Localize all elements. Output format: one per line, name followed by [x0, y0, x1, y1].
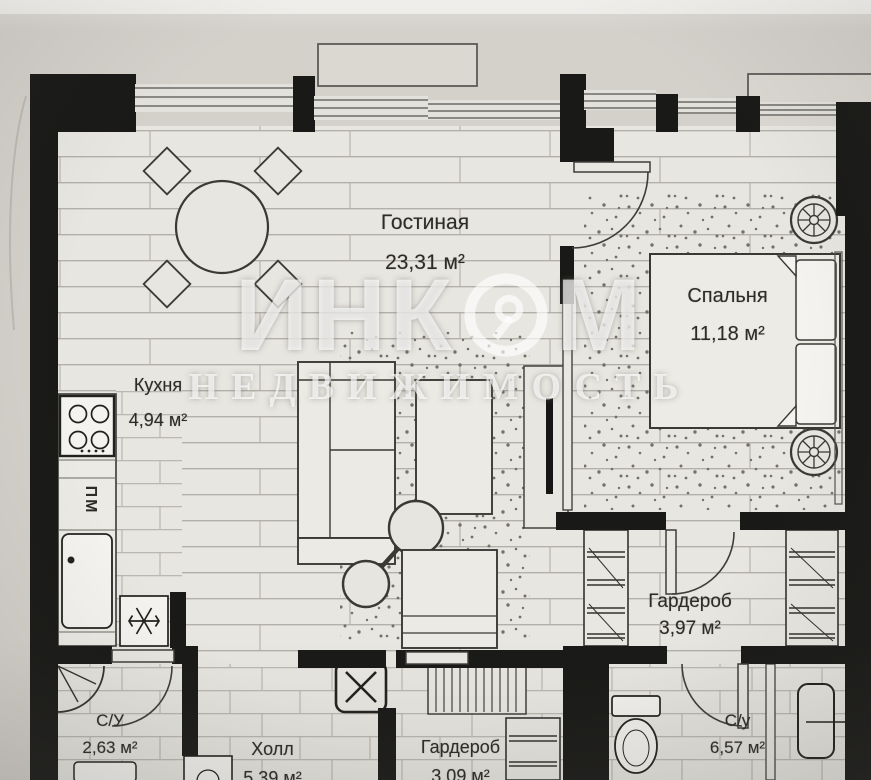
room-area: 11,18 м² [655, 324, 800, 344]
room-area: 6,57 м² [695, 739, 780, 756]
room-area: 2,63 м² [65, 739, 155, 756]
room-label-wardrobe-hall: Гардероб 3,09 м² [398, 738, 523, 780]
room-label-wardrobe-master: Гардероб 3,97 м² [625, 592, 755, 638]
room-label-living: Гостиная 23,31 м² [355, 212, 495, 273]
room-name: Кухня [118, 376, 198, 394]
wheel-pouf-icon [791, 197, 837, 243]
room-area: 3,09 м² [398, 767, 523, 780]
room-name: Спальня [655, 286, 800, 306]
coffee-table [416, 380, 492, 514]
wardrobe-rail-icon [584, 530, 628, 646]
room-label-bath-right: С/у 6,57 м² [695, 712, 780, 756]
room-area: 3,97 м² [625, 619, 755, 638]
bath-fixture [74, 762, 136, 780]
room-name: С/У [65, 712, 155, 729]
wardrobe-rail-icon [786, 530, 838, 646]
sofa [298, 362, 395, 564]
room-label-kitchen: Кухня 4,94 м² [118, 376, 198, 429]
room-area: 5,39 м² [225, 769, 320, 780]
tv-console [402, 550, 497, 648]
hall-closet-hatch [428, 666, 526, 714]
room-name: С/у [695, 712, 780, 729]
pillow [796, 344, 836, 424]
room-name: Холл [225, 740, 320, 758]
room-label-hall: Холл 5,39 м² [225, 740, 320, 780]
wall-console-tv [524, 366, 568, 528]
room-label-bedroom: Спальня 11,18 м² [655, 286, 800, 344]
tv-icon [546, 398, 553, 494]
floor-plan-photo: ПМ [0, 0, 871, 780]
vent-shaft-icon [336, 662, 386, 712]
room-name: Гостиная [355, 212, 495, 233]
dishwasher-label: ПМ [82, 486, 99, 515]
door-hall-closet-leaf [406, 652, 468, 664]
wheel-pouf-icon [791, 429, 837, 475]
room-name: Гардероб [625, 592, 755, 611]
kitchen-counter: ПМ [58, 394, 116, 646]
room-area: 4,94 м² [118, 411, 198, 429]
stove-icon [60, 396, 114, 456]
room-name: Гардероб [398, 738, 523, 756]
room-area: 23,31 м² [355, 252, 495, 273]
partition-thin [563, 300, 572, 510]
pillow [796, 260, 836, 340]
toilet-icon [612, 696, 660, 773]
sink-icon [62, 534, 112, 628]
fridge-icon [120, 596, 168, 646]
room-label-bath-left: С/У 2,63 м² [65, 712, 155, 756]
